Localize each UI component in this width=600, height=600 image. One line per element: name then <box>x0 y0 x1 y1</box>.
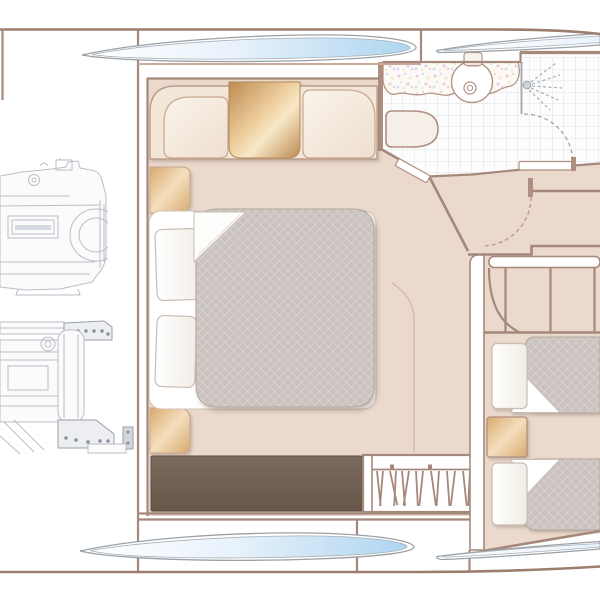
bedside-panel-lower <box>150 408 190 453</box>
berth-lower <box>492 459 600 530</box>
door-jamb <box>571 157 576 171</box>
hull-window-top-left <box>82 35 416 62</box>
wash-basin <box>452 53 493 103</box>
duvet-master <box>196 209 374 407</box>
berth-upper <box>492 337 600 413</box>
bedside-panel-upper <box>150 167 190 213</box>
hull-window-top-right <box>437 34 600 53</box>
bathroom-door-leaf <box>519 162 574 171</box>
hull-side-top <box>0 30 600 35</box>
double-bed <box>149 209 376 409</box>
rail-hook-1 <box>390 465 394 470</box>
faucet <box>464 53 482 66</box>
pillow-guest-upper <box>492 344 527 409</box>
engine-label-plate <box>15 225 51 230</box>
floor-plan-svg <box>0 0 600 600</box>
headboard-bronze-panel <box>229 82 300 158</box>
handrail <box>489 257 600 268</box>
door-hinge-stub <box>528 178 533 197</box>
stairwell-wall <box>470 255 484 550</box>
hanging-wardrobe <box>363 455 483 512</box>
pillow-master-lower <box>155 315 197 387</box>
bathroom <box>383 53 600 178</box>
foot-of-bed-sofa <box>151 456 362 511</box>
toilet <box>386 111 438 147</box>
pillow-guest-lower <box>492 463 527 525</box>
hull-side-bottom <box>0 567 600 573</box>
yacht-floor-plan <box>0 0 600 600</box>
headboard-unit <box>150 82 377 159</box>
bathroom-left-wall <box>378 62 383 151</box>
headboard-left-cushion <box>164 97 228 158</box>
headboard-right-cushion <box>303 90 375 158</box>
engine-drawing-bottom <box>0 321 133 454</box>
nightstand <box>487 417 527 457</box>
rail-hook-2 <box>428 465 432 470</box>
engine-drawing-top <box>0 148 122 296</box>
hull-window-bottom-left <box>80 533 414 560</box>
